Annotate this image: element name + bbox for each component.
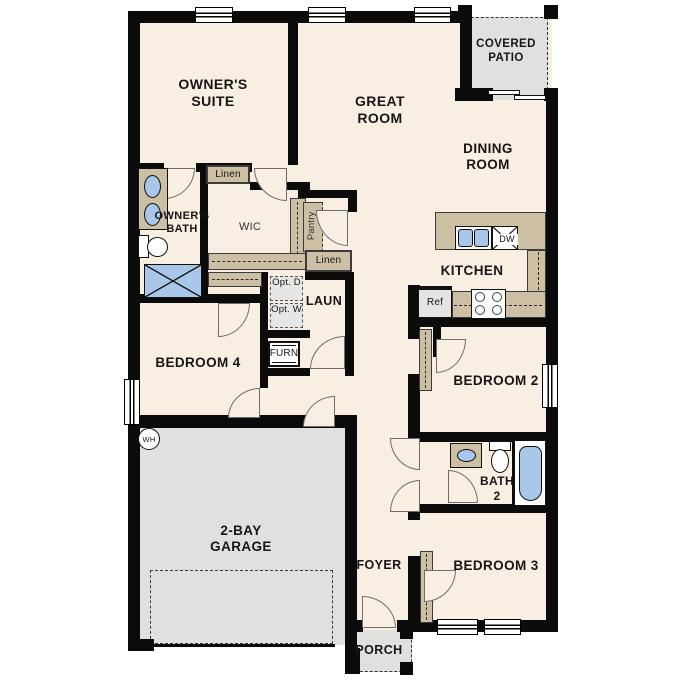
wall	[546, 88, 558, 632]
pantry-label: Pantry	[306, 203, 318, 249]
patio-post	[544, 88, 558, 101]
owners-bath-label: OWNER'S BATH	[149, 210, 215, 237]
wall	[345, 272, 354, 376]
window	[195, 7, 233, 23]
toilet-bowl	[147, 237, 168, 257]
wall	[345, 415, 357, 648]
porch-label: PORCH	[350, 643, 408, 658]
garage-opening-sill	[152, 644, 335, 647]
sink	[457, 449, 476, 462]
foyer-label: FOYER	[350, 558, 408, 573]
burner	[475, 292, 485, 302]
window	[414, 7, 451, 23]
shower	[144, 264, 202, 298]
wall	[348, 190, 357, 212]
bedroom4-label: BEDROOM 4	[138, 355, 258, 371]
covered-patio-label: COVERED PATIO	[471, 37, 541, 65]
toilet-bowl	[491, 449, 509, 473]
window	[484, 619, 521, 635]
window	[308, 7, 346, 23]
wall	[262, 330, 310, 338]
refrigerator-label: Ref	[420, 297, 450, 309]
burner	[475, 305, 485, 315]
wall	[345, 620, 363, 632]
water-heater-label: WH	[139, 435, 159, 444]
patio-slider-panel	[514, 95, 546, 100]
wall	[288, 23, 298, 165]
wall	[408, 318, 558, 327]
porch-post	[400, 662, 413, 675]
linen-label: Linen	[305, 255, 352, 267]
garage-door-outline	[150, 570, 333, 644]
patio-post	[544, 5, 558, 19]
wic-label: WIC	[225, 221, 275, 234]
owners-suite-label: OWNER'S SUITE	[171, 76, 255, 110]
window	[124, 379, 140, 425]
wall	[128, 11, 140, 651]
kitchen-label: KITCHEN	[422, 263, 522, 279]
closet-dash	[212, 279, 258, 280]
bedroom3-label: BEDROOM 3	[436, 558, 556, 574]
bedroom2-label: BEDROOM 2	[436, 373, 556, 389]
wall	[408, 556, 420, 632]
wic-rod-dash	[212, 261, 302, 262]
burner	[492, 305, 502, 315]
wall	[128, 639, 154, 651]
tub-basin	[519, 446, 542, 501]
wall	[268, 368, 310, 376]
sink-basin	[458, 229, 473, 247]
closet-dash	[425, 332, 426, 388]
laundry-label: LAUN	[295, 294, 353, 309]
window	[437, 619, 478, 635]
dishwasher-label: DW	[496, 234, 518, 245]
floor-plan: DW Ref Opt. D Opt. W FURN WH OWNER'S SUI…	[0, 0, 687, 687]
linen-label: Linen	[206, 169, 250, 181]
sink-basin	[474, 229, 489, 247]
garage-label: 2-BAY GARAGE	[206, 523, 276, 556]
furnace-label: FURN	[266, 348, 302, 360]
great-room-label: GREAT ROOM	[343, 93, 417, 127]
dining-room-label: DINING ROOM	[451, 141, 525, 174]
burner	[492, 292, 502, 302]
sink	[144, 175, 161, 198]
bath2-label: BATH 2	[475, 474, 519, 503]
optional-dryer-label: Opt. D	[271, 278, 302, 288]
